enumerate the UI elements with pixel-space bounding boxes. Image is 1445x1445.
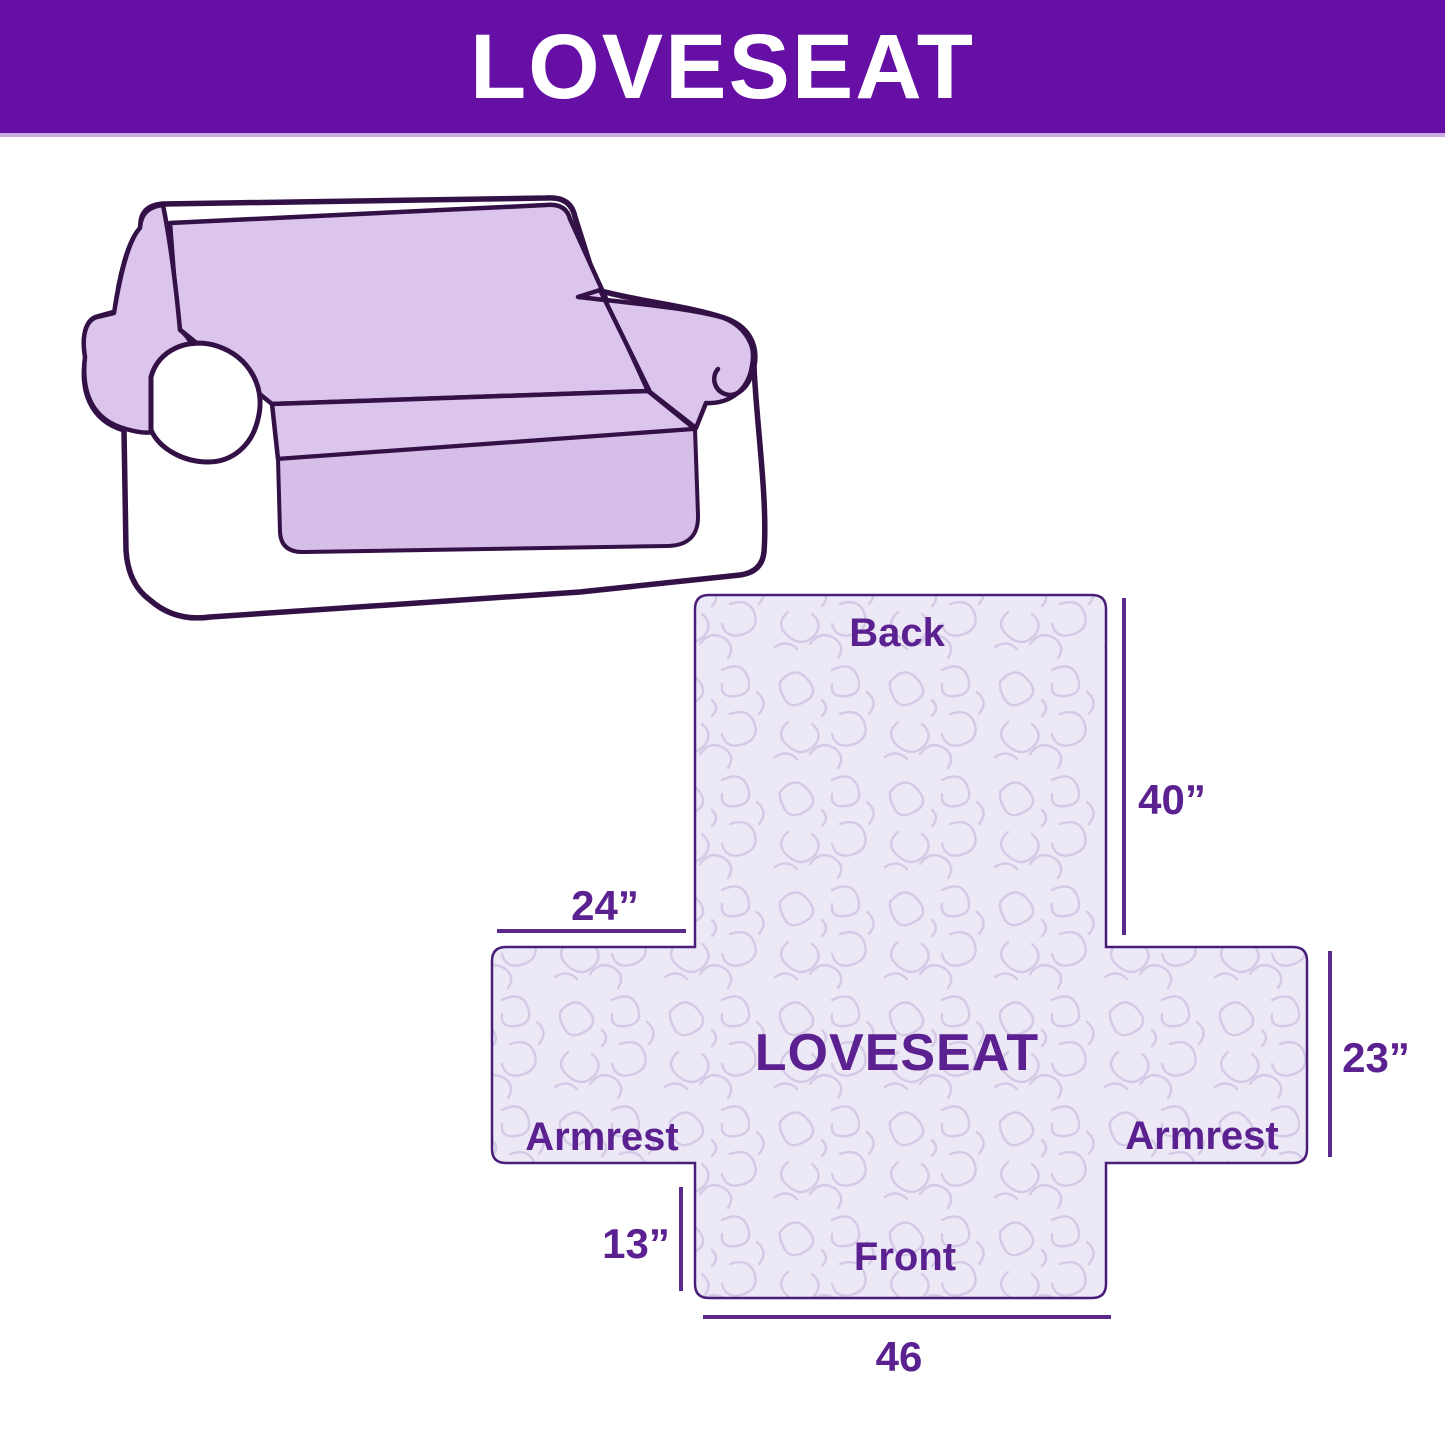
loveseat-illustration [84,198,765,618]
cover-cross-shape [492,595,1307,1298]
infographic-page: LOVESEAT Back LOVESEAT Armrest Armrest F… [0,0,1445,1445]
front-section-label: Front [854,1237,956,1277]
header-banner: LOVESEAT [0,0,1445,137]
armrest-right-label: Armrest [1125,1116,1278,1156]
dimension-label-armrest-top-width: 24” [571,885,639,927]
dimension-label-back-height: 40” [1138,779,1206,821]
armrest-left-label: Armrest [525,1117,678,1157]
dimension-label-front-width: 46 [876,1336,923,1378]
dimension-label-front-skirt-height: 13” [602,1223,670,1265]
diagram-graphics [0,0,1445,1445]
dimension-label-armrest-height: 23” [1342,1037,1410,1079]
page-title: LOVESEAT [470,21,975,113]
back-section-label: Back [849,613,945,653]
sofa-left-arm-roll [151,343,260,462]
center-loveseat-label: LOVESEAT [755,1027,1039,1079]
